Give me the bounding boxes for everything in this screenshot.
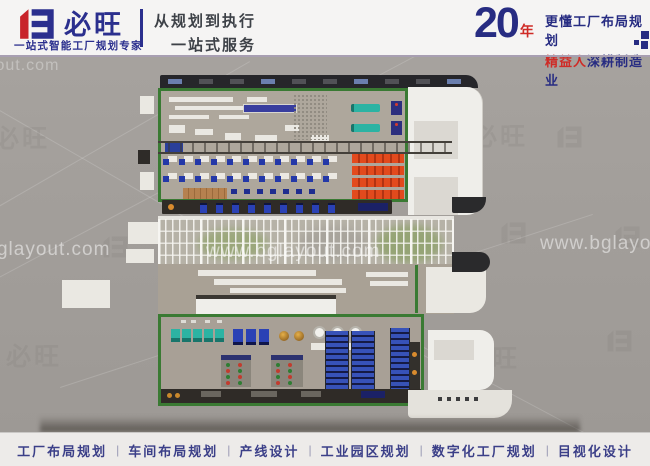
- roof-vent: [230, 79, 244, 84]
- indicator-dot: [238, 381, 242, 385]
- roof-vent: [385, 79, 399, 84]
- pallet-rack-column: [351, 331, 375, 393]
- workstation: [307, 173, 321, 185]
- bench-strip: [370, 281, 408, 286]
- chair: [291, 176, 297, 182]
- footer-menu-item[interactable]: 产线设计: [239, 441, 299, 460]
- chair: [259, 176, 265, 182]
- roof-vent: [168, 79, 182, 84]
- indicator-dot: [226, 375, 230, 379]
- brand-logo-icon: [18, 8, 60, 40]
- ground-shadow: [40, 416, 580, 432]
- work-bench: [225, 133, 241, 140]
- teal-machine: [351, 124, 380, 132]
- roof-bit: [191, 320, 196, 323]
- watermark-logo: 必旺: [606, 329, 636, 353]
- line-cabinet: [361, 391, 385, 398]
- machine-cell: [351, 121, 407, 135]
- floor-mat: [183, 188, 227, 199]
- lower-hall: [158, 314, 424, 406]
- work-bench: [169, 115, 209, 119]
- url-watermark: www.bglayout.com: [206, 241, 380, 263]
- workstation: [323, 173, 337, 185]
- workstation: [243, 156, 257, 168]
- roof-vent: [416, 79, 430, 84]
- workstation: [163, 173, 177, 185]
- apron-dot: [447, 397, 451, 401]
- workstation: [211, 173, 225, 185]
- dark-machine-column: [410, 342, 420, 390]
- promo-flyer: 必旺 一站式智能工厂规划专家 从规划到执行 一站式服务 20 年 更懂工厂布局规…: [0, 0, 650, 466]
- machine-stand: [391, 121, 402, 135]
- line-machine: [264, 203, 271, 213]
- footer-separator: |: [420, 443, 423, 457]
- teal-machine: [351, 104, 380, 112]
- indicator-dot: [238, 375, 242, 379]
- footer-menu-item[interactable]: 工业园区规划: [321, 441, 411, 460]
- slogan-line1: 从规划到执行: [154, 10, 256, 31]
- footer-menu-item[interactable]: 工厂布局规划: [17, 441, 107, 460]
- mid-apron: [158, 264, 454, 314]
- desk: [280, 173, 289, 179]
- roof-vent: [261, 79, 275, 84]
- indicator-dot: [226, 363, 230, 367]
- chair: [275, 176, 281, 182]
- apron-dot: [438, 397, 442, 401]
- indicator-dot: [276, 381, 280, 385]
- chair: [211, 159, 217, 165]
- desk: [264, 156, 273, 162]
- chair: [243, 159, 249, 165]
- url-watermark: www.bglayout.com: [0, 57, 59, 75]
- desk: [216, 156, 225, 162]
- deco-pixel-square: [641, 31, 649, 39]
- watermark-logo: 必旺: [0, 337, 62, 373]
- dock-block: [62, 280, 110, 308]
- orange-rack-row: [352, 154, 404, 163]
- desk: [296, 173, 305, 179]
- orange-rack-row: [352, 178, 404, 187]
- bench-seat: [244, 189, 250, 194]
- machine-cluster: [221, 355, 251, 387]
- brand-name: 必旺: [64, 3, 124, 42]
- machine-base: [193, 338, 202, 342]
- header-divider-bar: [140, 9, 143, 47]
- desk: [168, 156, 177, 162]
- roof-vent: [323, 79, 337, 84]
- chair: [259, 159, 265, 165]
- chair: [307, 176, 313, 182]
- footer-menu-item[interactable]: 车间布局规划: [128, 441, 218, 460]
- indicator-dot: [276, 363, 280, 367]
- footer-separator: |: [227, 443, 230, 457]
- work-bench: [169, 125, 185, 133]
- blue-machine: [246, 329, 256, 345]
- watermark-logo: 必旺: [500, 221, 530, 245]
- desk: [312, 156, 321, 162]
- line-machine: [280, 203, 287, 213]
- workstation: [163, 156, 177, 168]
- indicator-dot: [288, 375, 292, 379]
- work-bench: [247, 97, 267, 102]
- line-cabinet: [301, 391, 321, 397]
- indicator-dot: [288, 369, 292, 373]
- workstation: [179, 173, 193, 185]
- line-machine: [232, 203, 239, 213]
- teal-machine: [204, 329, 213, 342]
- bottom-line-strip: [161, 389, 424, 403]
- chair: [323, 159, 329, 165]
- workstation: [307, 156, 321, 168]
- indicator-dot: [226, 369, 230, 373]
- pallet-dot-grid: [293, 94, 327, 140]
- footer-menu: 工厂布局规划|车间布局规划|产线设计|工业园区规划|数字化工厂规划|目视化设计: [0, 433, 650, 466]
- bench-seat: [270, 189, 276, 194]
- years-unit: 年: [520, 21, 534, 41]
- teal-machine: [193, 329, 202, 342]
- years-number: 20: [474, 1, 518, 46]
- desk: [184, 173, 193, 179]
- desk: [184, 156, 193, 162]
- apron-dot: [456, 397, 460, 401]
- machine-cluster: [271, 355, 303, 387]
- chair: [195, 159, 201, 165]
- blue-machine: [233, 329, 243, 345]
- chair: [179, 159, 185, 165]
- bench-strip: [230, 288, 346, 293]
- footer-menu-item[interactable]: 数字化工厂规划: [432, 441, 537, 460]
- line-machine: [312, 203, 319, 213]
- machine-base: [204, 338, 213, 342]
- years-badge: 20 年: [474, 1, 534, 46]
- work-bench: [169, 97, 233, 102]
- machine-cell: [351, 101, 407, 115]
- indicator-dot: [412, 370, 417, 375]
- roof-bit: [217, 320, 222, 323]
- footer-separator: |: [308, 443, 311, 457]
- desk: [232, 173, 241, 179]
- bronze-coil: [279, 331, 289, 341]
- line-cabinet: [358, 203, 388, 211]
- watermark-logo: 必旺: [556, 125, 586, 149]
- orange-rack-row: [352, 166, 404, 175]
- workstation: [323, 156, 337, 168]
- workstation: [179, 156, 193, 168]
- teal-machine: [171, 329, 180, 342]
- chair: [211, 176, 217, 182]
- chair: [323, 176, 329, 182]
- bench-seat: [296, 189, 302, 194]
- roof-vent: [447, 79, 461, 84]
- cluster-top: [221, 355, 251, 360]
- indicator-dot: [412, 352, 417, 357]
- desk: [248, 173, 257, 179]
- watermark-logo: 必旺: [0, 119, 50, 155]
- chair: [275, 159, 281, 165]
- line-cabinet: [251, 391, 277, 397]
- header-right-taglines: 更懂工厂布局规划 精益人深耕制造业: [545, 11, 650, 89]
- apron-dot: [474, 397, 478, 401]
- roof-bit: [205, 320, 210, 323]
- bench-strip: [366, 272, 408, 277]
- chair: [243, 176, 249, 182]
- roof-bit: [181, 320, 186, 323]
- cluster-top: [271, 355, 303, 360]
- bench-seat: [309, 189, 315, 194]
- machine-stand: [391, 101, 402, 115]
- line-dot: [167, 393, 172, 398]
- indicator-dot: [276, 369, 280, 373]
- workstation: [291, 173, 305, 185]
- brand-tagline: 一站式智能工厂规划专家: [14, 38, 143, 53]
- desk: [248, 156, 257, 162]
- workstation: [227, 156, 241, 168]
- chair: [227, 176, 233, 182]
- chair: [307, 159, 313, 165]
- line-cabinet: [201, 391, 221, 397]
- walkway-line: [415, 265, 418, 313]
- lower-annex-building: [428, 330, 494, 390]
- line-machine: [296, 203, 303, 213]
- chair: [179, 176, 185, 182]
- machine-base: [215, 338, 224, 342]
- machine-base: [171, 338, 180, 342]
- line-machine: [200, 203, 207, 213]
- workstation: [275, 173, 289, 185]
- pallet-rack-column: [325, 331, 349, 393]
- url-watermark: www.bglayout.com: [540, 233, 650, 255]
- header-slogan: 从规划到执行 一站式服务: [154, 10, 256, 55]
- workstation: [243, 173, 257, 185]
- bench-seat: [257, 189, 263, 194]
- footer-separator: |: [116, 443, 119, 457]
- line-machine: [328, 203, 335, 213]
- slogan-line2: 一站式服务: [154, 34, 256, 55]
- desk: [328, 173, 337, 179]
- footer-menu-item[interactable]: 目视化设计: [558, 441, 633, 460]
- footer-menu-bar: 工厂布局规划|车间布局规划|产线设计|工业园区规划|数字化工厂规划|目视化设计: [0, 432, 650, 466]
- bench-seat: [283, 189, 289, 194]
- desk: [200, 156, 209, 162]
- indicator-dot: [395, 103, 398, 106]
- line-dot: [168, 204, 174, 210]
- work-bench: [195, 129, 213, 135]
- dock-block: [140, 172, 154, 190]
- roof-vent: [354, 79, 368, 84]
- desk: [216, 173, 225, 179]
- roof-vent: [292, 79, 306, 84]
- indicator-dot: [226, 381, 230, 385]
- line-machine: [248, 203, 255, 213]
- bench-seat: [231, 189, 237, 194]
- header-bar: 必旺 一站式智能工厂规划专家 从规划到执行 一站式服务 20 年 更懂工厂布局规…: [0, 0, 650, 55]
- deco-pixel-square: [641, 41, 648, 49]
- desk: [232, 156, 241, 162]
- dock-block: [138, 150, 150, 164]
- indicator-dot: [238, 363, 242, 367]
- teal-machine: [215, 329, 224, 342]
- indicator-dot: [238, 369, 242, 373]
- scene-background: 必旺 必旺 必旺 必旺 必旺 必旺 必旺 必旺 必旺 必旺: [0, 57, 650, 432]
- chair: [195, 176, 201, 182]
- indicator-dot: [288, 363, 292, 367]
- annex-bay: [434, 340, 474, 360]
- chair: [163, 159, 169, 165]
- workstation: [259, 156, 273, 168]
- lower-apron: [408, 390, 512, 418]
- workstation: [291, 156, 305, 168]
- workstation: [275, 156, 289, 168]
- chair: [291, 159, 297, 165]
- header-bottom-rule: [0, 55, 650, 57]
- dock-block: [126, 249, 154, 263]
- footer-separator: |: [546, 443, 549, 457]
- desk: [328, 156, 337, 162]
- dock-block: [128, 222, 158, 244]
- orange-rack-block: [352, 154, 404, 201]
- desk: [296, 156, 305, 162]
- desk: [264, 173, 273, 179]
- roof-corner: [452, 252, 490, 272]
- machine-base: [182, 338, 191, 342]
- line-dot: [175, 393, 180, 398]
- teal-machine: [182, 329, 191, 342]
- cnc-machine: [243, 104, 297, 113]
- line-machine: [216, 203, 223, 213]
- workstation: [195, 173, 209, 185]
- apron-dot: [465, 397, 469, 401]
- assembly-line: [162, 200, 392, 214]
- chair: [163, 176, 169, 182]
- desk: [312, 173, 321, 179]
- deco-pixel-square: [634, 40, 639, 45]
- url-watermark: www.bglayout.com: [0, 239, 110, 261]
- workstation: [227, 173, 241, 185]
- desk: [200, 173, 209, 179]
- desk: [280, 156, 289, 162]
- work-bench: [219, 115, 249, 119]
- chair: [227, 159, 233, 165]
- roof-corner: [452, 197, 486, 213]
- workstation: [211, 156, 225, 168]
- indicator-dot: [288, 381, 292, 385]
- indicator-dot: [276, 375, 280, 379]
- orange-rack-row: [352, 190, 404, 199]
- mid-annex: [426, 267, 486, 313]
- blue-machine: [259, 329, 269, 345]
- bench-strip: [214, 279, 342, 285]
- dock-block: [140, 96, 154, 114]
- bench-strip: [198, 270, 316, 276]
- indicator-dot: [395, 123, 398, 126]
- workstation: [195, 156, 209, 168]
- workstation: [259, 173, 273, 185]
- desk: [168, 173, 177, 179]
- roof-vent: [199, 79, 213, 84]
- bronze-coil: [294, 331, 304, 341]
